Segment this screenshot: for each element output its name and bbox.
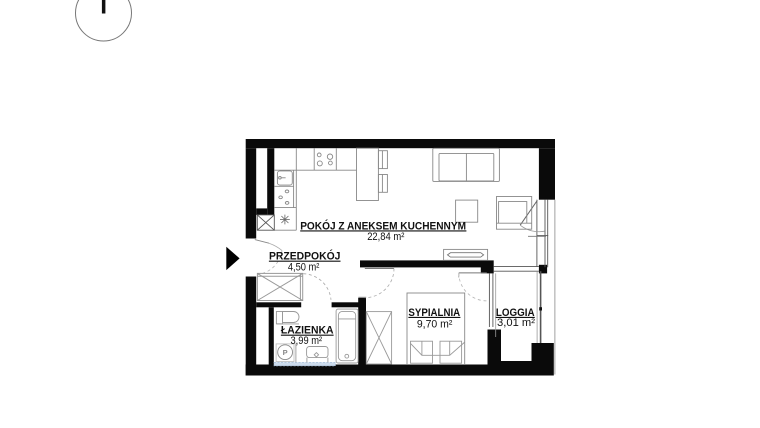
svg-text:4,50 m²: 4,50 m²: [288, 262, 320, 274]
svg-text:9,70 m²: 9,70 m²: [417, 319, 453, 331]
svg-text:22,84 m²: 22,84 m²: [367, 231, 404, 243]
svg-text:3,01 m²: 3,01 m²: [497, 317, 535, 329]
svg-text:P: P: [283, 348, 288, 357]
svg-text:3,99 m²: 3,99 m²: [291, 335, 323, 347]
